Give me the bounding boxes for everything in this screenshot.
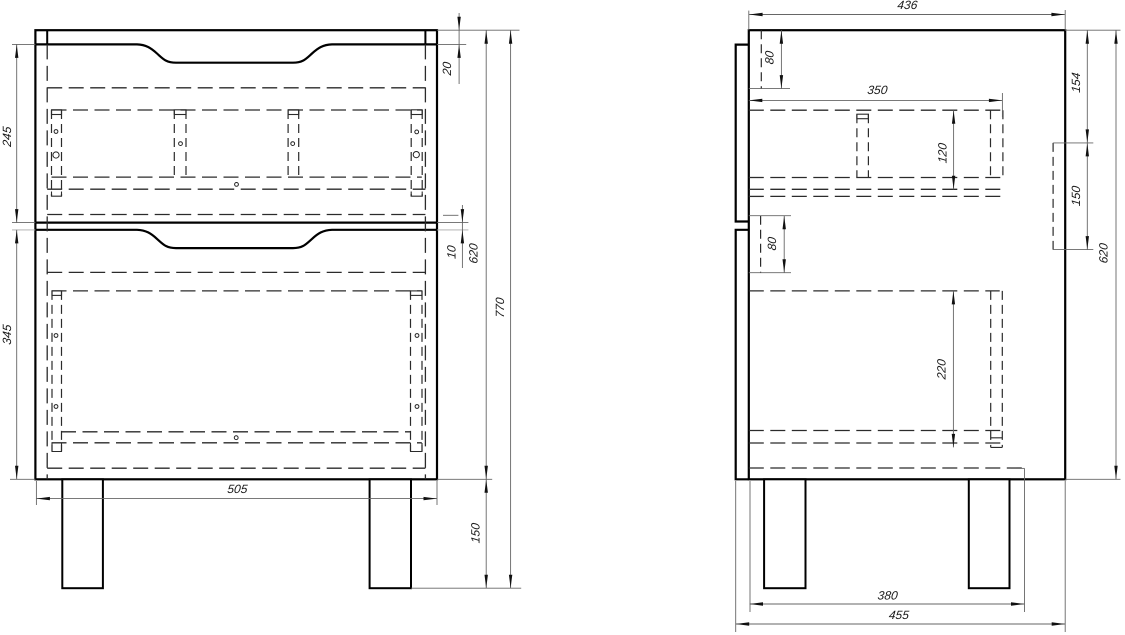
svg-text:350: 350 bbox=[867, 83, 889, 97]
svg-text:620: 620 bbox=[1097, 242, 1111, 264]
svg-text:220: 220 bbox=[934, 358, 948, 381]
svg-text:505: 505 bbox=[227, 482, 249, 496]
svg-text:770: 770 bbox=[493, 297, 507, 319]
svg-text:150: 150 bbox=[1069, 185, 1083, 207]
svg-text:120: 120 bbox=[936, 142, 950, 164]
svg-text:436: 436 bbox=[897, 0, 919, 12]
svg-text:620: 620 bbox=[467, 242, 481, 264]
svg-text:245: 245 bbox=[0, 126, 14, 149]
svg-text:455: 455 bbox=[888, 608, 910, 622]
svg-text:80: 80 bbox=[765, 236, 779, 251]
svg-text:80: 80 bbox=[763, 50, 777, 65]
svg-text:345: 345 bbox=[0, 324, 14, 346]
svg-text:154: 154 bbox=[1069, 72, 1083, 94]
svg-text:380: 380 bbox=[877, 589, 899, 603]
svg-text:10: 10 bbox=[445, 244, 459, 259]
svg-text:150: 150 bbox=[469, 522, 483, 544]
svg-text:20: 20 bbox=[440, 61, 454, 77]
